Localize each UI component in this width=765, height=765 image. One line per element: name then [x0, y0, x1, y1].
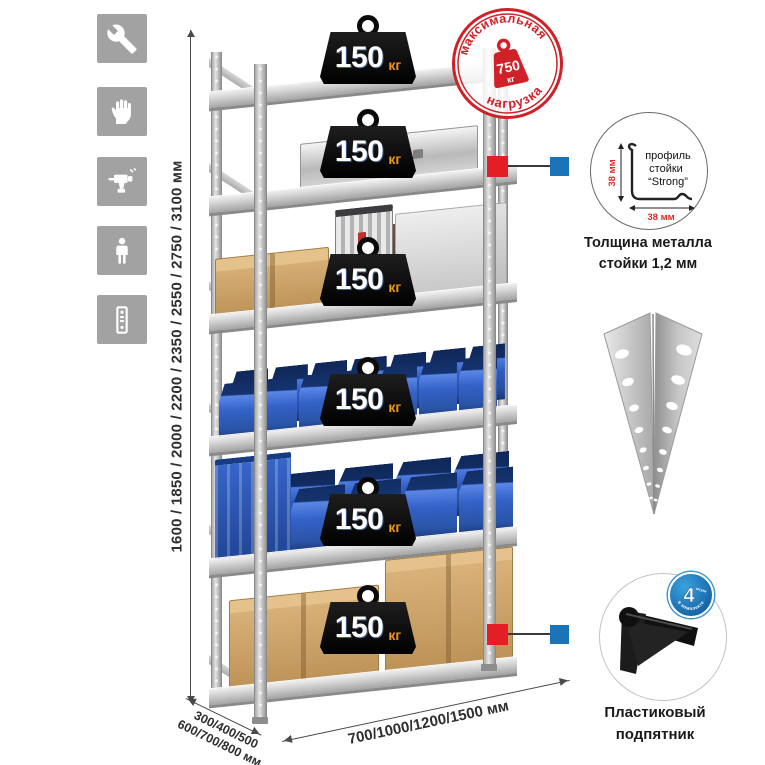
shelf-load-badge: 150кг	[320, 15, 416, 84]
shelf-load-badge: 150кг	[320, 357, 416, 426]
profile-caption: Толщина металла стойки 1,2 мм	[573, 233, 723, 275]
load-unit: кг	[388, 151, 401, 167]
blue-marker	[550, 625, 569, 644]
depth-dimension: 300/400/500 600/700/800 мм	[171, 698, 288, 765]
profile-dim-vertical: 38 мм	[607, 159, 618, 186]
badge-small-text: штуки	[696, 586, 708, 593]
badge-count: 4	[683, 585, 695, 607]
load-unit: кг	[388, 279, 401, 295]
profile-label-1: профиль	[645, 150, 691, 162]
load-value: 150	[335, 611, 384, 645]
wrench-icon	[97, 14, 147, 63]
shelf-load-badge: 150кг	[320, 477, 416, 546]
load-value: 150	[335, 503, 384, 537]
shelf-load-badge: 150кг	[320, 585, 416, 654]
profile-label-2: стойки	[649, 163, 683, 175]
load-value: 150	[335, 263, 384, 297]
foot-caption: Пластиковый подпятник	[580, 702, 730, 746]
max-load-stamp: максимальная нагрузка 750 кг	[439, 0, 575, 132]
corner-post-image	[592, 300, 710, 530]
arrow-up-icon	[187, 26, 195, 37]
load-value: 150	[335, 135, 384, 169]
profile-caption-line2: стойки 1,2 мм	[599, 256, 698, 272]
red-marker	[487, 156, 508, 177]
gloves-icon	[97, 87, 147, 136]
rack-post-front-right	[483, 48, 496, 665]
foot-caption-line1: Пластиковый	[604, 704, 705, 721]
load-value: 150	[335, 383, 384, 417]
load-unit: кг	[388, 519, 401, 535]
load-unit: кг	[388, 399, 401, 415]
red-marker	[487, 624, 508, 645]
load-value: 150	[335, 41, 384, 75]
blue-crate	[215, 452, 291, 564]
profile-callout-circle: 38 мм 38 мм профиль стойки “Strong”	[590, 112, 708, 230]
height-dimension-line	[190, 30, 191, 700]
shelf-load-badge: 150кг	[320, 237, 416, 306]
foot-caption-line2: подпятник	[616, 726, 695, 743]
profile-dim-horizontal: 38 мм	[647, 212, 674, 223]
shelf-load-badge: 150кг	[320, 109, 416, 178]
profile-label-3: “Strong”	[648, 176, 688, 188]
drill-icon	[97, 157, 147, 206]
person-icon	[97, 226, 147, 275]
height-label: 1600 / 1850 / 2000 / 2200 / 2350 / 2550 …	[169, 17, 186, 697]
load-unit: кг	[388, 627, 401, 643]
load-unit: кг	[388, 57, 401, 73]
rack-post-icon	[97, 295, 147, 344]
shelving-rack-infographic: 1600 / 1850 / 2000 / 2200 / 2350 / 2550 …	[0, 0, 765, 765]
profile-caption-line1: Толщина металла	[584, 235, 712, 251]
rack-post-front-left	[254, 64, 267, 718]
included-count-badge: 4 штуки в комплекте	[668, 572, 714, 618]
blue-marker	[550, 157, 569, 176]
